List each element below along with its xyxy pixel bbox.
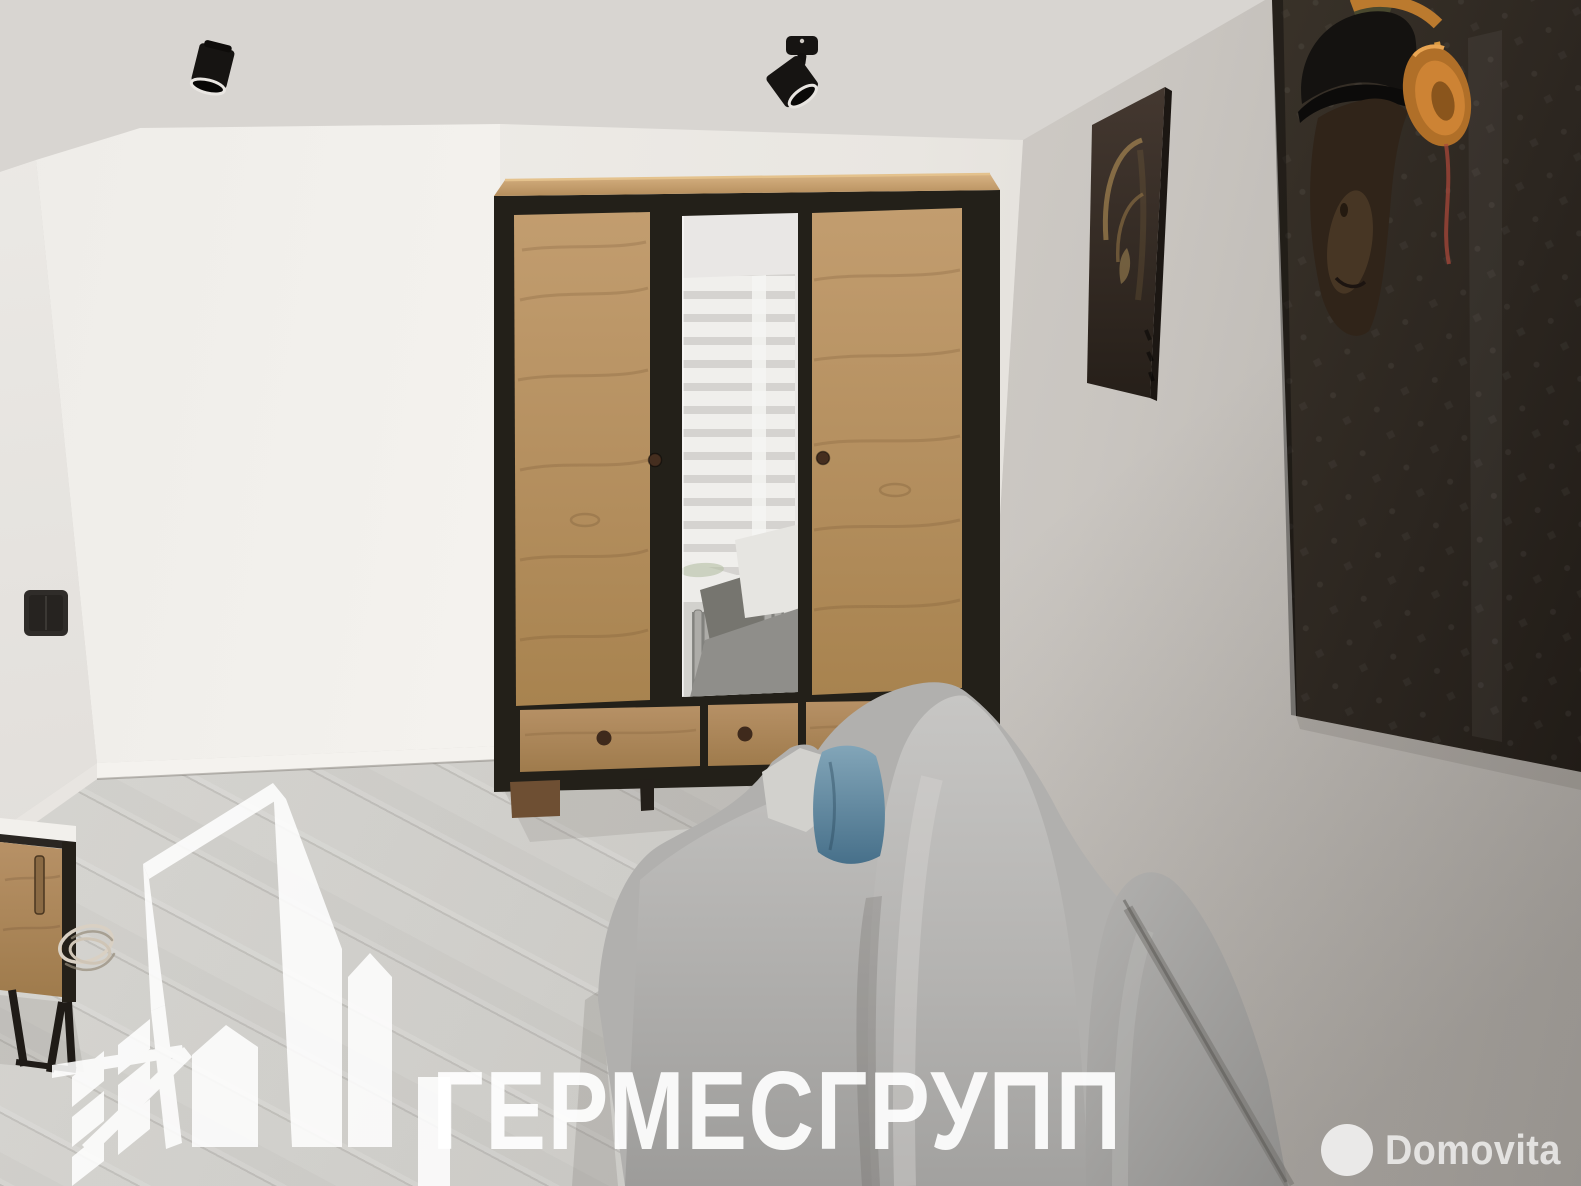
blue-pillow [813,746,885,864]
listing-photo: ГЕРМЕСГРУПП Domovita [0,0,1581,1186]
light-switch [24,590,68,636]
door-knob [817,452,830,465]
wardrobe-right-door [812,208,962,695]
agency-watermark-text: ГЕРМЕСГРУПП [432,1056,1123,1167]
domovita-watermark: Domovita [1321,1124,1580,1176]
small-monkey-poster [1087,87,1172,401]
door-knob [649,454,662,467]
large-monkey-headphones-poster [1272,0,1581,790]
ceiling-spotlight-right-icon [765,36,823,113]
wardrobe-mirror [678,210,802,702]
domovita-circle-icon [1321,1124,1373,1176]
agency-watermark-logo city-buildings-outline-icon [52,755,452,1186]
wardrobe-foot [640,779,654,811]
wardrobe-foot [510,780,560,818]
ceiling-spotlight-left-icon [189,38,236,97]
domovita-wordmark: Domovita [1385,1126,1561,1174]
wardrobe-left-door [514,212,662,706]
